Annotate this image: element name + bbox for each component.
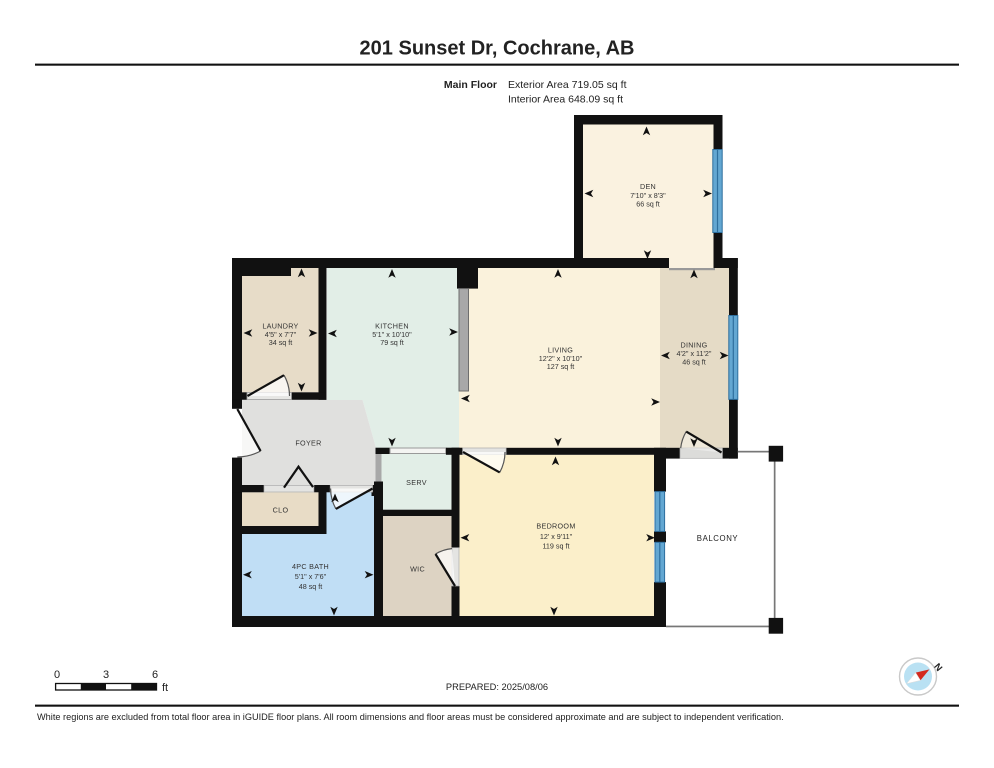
svg-text:BALCONY: BALCONY [697,534,739,543]
svg-text:5'1" x 7'6": 5'1" x 7'6" [295,572,327,581]
svg-text:119 sq ft: 119 sq ft [542,541,569,550]
svg-text:Main Floor: Main Floor [444,79,497,91]
svg-text:3: 3 [103,669,109,681]
svg-text:34 sq ft: 34 sq ft [269,338,293,347]
svg-text:201 Sunset Dr, Cochrane, AB: 201 Sunset Dr, Cochrane, AB [360,38,635,60]
svg-text:4PC BATH: 4PC BATH [292,562,329,571]
svg-text:48 sq ft: 48 sq ft [299,582,323,591]
svg-text:WIC: WIC [410,565,425,574]
svg-text:FOYER: FOYER [295,439,321,448]
svg-text:SERV: SERV [406,478,427,487]
svg-text:CLO: CLO [273,506,289,515]
svg-text:12' x 9'11": 12' x 9'11" [540,532,573,541]
svg-text:BEDROOM: BEDROOM [536,522,575,531]
svg-text:46 sq ft: 46 sq ft [682,358,706,367]
svg-text:79 sq ft: 79 sq ft [380,338,404,347]
svg-text:White regions are excluded fro: White regions are excluded from total fl… [37,712,784,722]
svg-text:0: 0 [54,669,60,681]
svg-text:PREPARED: 2025/08/06: PREPARED: 2025/08/06 [446,682,548,692]
svg-text:66 sq ft: 66 sq ft [636,199,660,208]
svg-text:6: 6 [152,669,158,681]
svg-text:ft: ft [162,682,168,694]
svg-text:Exterior Area 719.05 sq ft: Exterior Area 719.05 sq ft [508,79,627,91]
svg-text:Interior Area 648.09 sq ft: Interior Area 648.09 sq ft [508,94,623,106]
svg-text:127 sq ft: 127 sq ft [547,362,575,371]
